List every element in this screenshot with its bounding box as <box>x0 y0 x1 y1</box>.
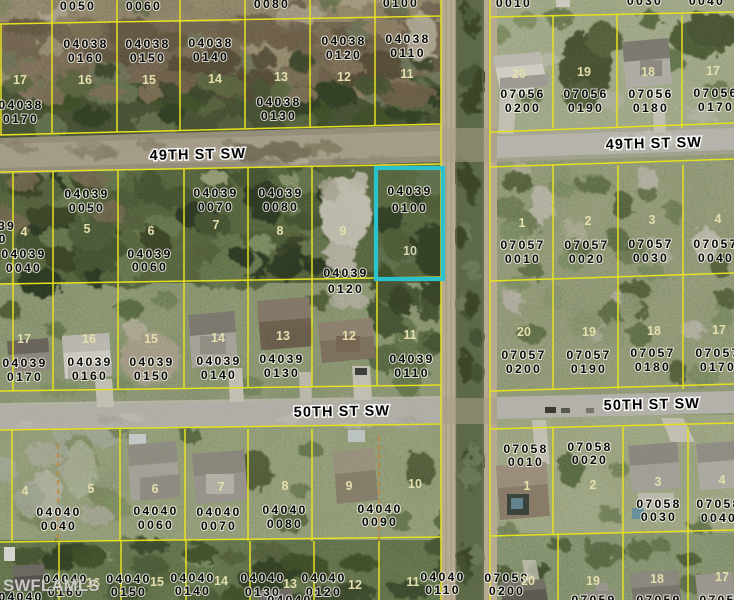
svg-text:0190: 0190 <box>568 101 604 115</box>
svg-text:4: 4 <box>21 225 28 239</box>
svg-text:0160: 0160 <box>68 51 104 65</box>
svg-text:04040: 04040 <box>106 572 151 586</box>
svg-text:0120: 0120 <box>326 48 362 62</box>
svg-text:0130: 0130 <box>264 366 300 380</box>
svg-text:0100: 0100 <box>392 201 428 215</box>
svg-text:13: 13 <box>274 70 288 84</box>
svg-text:07056: 07056 <box>693 86 734 100</box>
svg-text:07057: 07057 <box>500 238 545 252</box>
svg-text:0200: 0200 <box>506 362 542 376</box>
svg-text:04038: 04038 <box>0 98 44 112</box>
svg-text:4: 4 <box>715 212 722 226</box>
svg-text:07057: 07057 <box>693 237 734 251</box>
svg-text:07057: 07057 <box>564 238 609 252</box>
svg-text:17: 17 <box>712 323 726 337</box>
svg-text:0: 0 <box>0 232 8 246</box>
svg-text:0200: 0200 <box>489 584 525 598</box>
svg-text:1: 1 <box>519 216 526 230</box>
svg-text:0150: 0150 <box>111 585 147 599</box>
svg-text:0150: 0150 <box>134 369 170 383</box>
svg-text:4: 4 <box>719 473 726 487</box>
svg-text:3: 3 <box>655 475 662 489</box>
svg-text:1: 1 <box>524 479 531 493</box>
svg-text:0080: 0080 <box>254 0 290 11</box>
svg-text:0010: 0010 <box>508 455 544 469</box>
svg-text:04040: 04040 <box>357 502 402 516</box>
svg-text:04040: 04040 <box>36 505 81 519</box>
svg-text:13: 13 <box>283 577 297 591</box>
svg-text:04040: 04040 <box>420 570 465 584</box>
svg-text:0030: 0030 <box>641 510 677 524</box>
svg-text:0110: 0110 <box>394 366 429 380</box>
svg-text:16: 16 <box>78 73 92 87</box>
svg-text:11: 11 <box>406 575 419 589</box>
svg-text:07059: 07059 <box>571 593 616 600</box>
svg-text:0170: 0170 <box>3 112 39 126</box>
svg-text:0050: 0050 <box>69 201 105 215</box>
svg-text:07059: 07059 <box>699 593 734 600</box>
svg-text:3: 3 <box>649 213 656 227</box>
svg-text:8: 8 <box>277 224 284 238</box>
svg-text:04039: 04039 <box>259 352 304 366</box>
svg-text:0130: 0130 <box>261 109 297 123</box>
svg-text:07056: 07056 <box>563 87 608 101</box>
svg-text:0040: 0040 <box>41 519 77 533</box>
svg-text:04038: 04038 <box>63 37 108 51</box>
svg-text:0020: 0020 <box>572 453 608 467</box>
svg-text:0040: 0040 <box>689 0 725 8</box>
svg-text:0010: 0010 <box>496 0 532 10</box>
svg-text:07058: 07058 <box>696 497 734 511</box>
svg-text:0200: 0200 <box>505 101 541 115</box>
svg-text:9: 9 <box>340 224 347 238</box>
svg-text:07058: 07058 <box>636 497 681 511</box>
svg-text:7: 7 <box>213 218 220 232</box>
svg-text:0110: 0110 <box>425 583 460 597</box>
svg-text:04039: 04039 <box>129 355 174 369</box>
svg-text:0060: 0060 <box>138 518 174 532</box>
svg-text:12: 12 <box>342 329 356 343</box>
svg-text:0010: 0010 <box>505 252 541 266</box>
svg-text:07057: 07057 <box>628 237 673 251</box>
svg-text:0190: 0190 <box>571 362 607 376</box>
svg-text:7: 7 <box>218 480 225 494</box>
svg-text:12: 12 <box>337 70 351 84</box>
svg-text:11: 11 <box>403 328 416 342</box>
svg-text:19: 19 <box>577 65 591 79</box>
svg-text:16: 16 <box>82 332 96 346</box>
svg-text:04040: 04040 <box>267 593 312 600</box>
svg-text:07057: 07057 <box>695 346 734 360</box>
svg-text:0110: 0110 <box>390 46 425 60</box>
svg-text:04040: 04040 <box>196 505 241 519</box>
svg-text:0080: 0080 <box>267 517 303 531</box>
svg-text:04038: 04038 <box>385 32 430 46</box>
svg-text:13: 13 <box>276 329 290 343</box>
svg-text:20: 20 <box>512 67 526 81</box>
svg-text:07056: 07056 <box>500 87 545 101</box>
svg-text:19: 19 <box>586 574 600 588</box>
svg-text:10: 10 <box>408 477 422 491</box>
svg-text:15: 15 <box>144 332 158 346</box>
svg-text:04039: 04039 <box>258 186 303 200</box>
svg-text:07057: 07057 <box>501 348 546 362</box>
svg-text:04039: 04039 <box>67 355 112 369</box>
svg-text:0060: 0060 <box>132 260 168 274</box>
svg-text:04039: 04039 <box>64 187 109 201</box>
svg-text:04039: 04039 <box>323 266 368 280</box>
svg-text:0040: 0040 <box>701 511 734 525</box>
svg-text:0170: 0170 <box>698 100 734 114</box>
svg-text:0180: 0180 <box>635 360 671 374</box>
svg-text:50TH ST SW: 50TH ST SW <box>294 403 391 421</box>
svg-text:0170: 0170 <box>7 370 43 384</box>
svg-text:0170: 0170 <box>700 360 734 374</box>
svg-text:04039: 04039 <box>1 247 46 261</box>
svg-text:0030: 0030 <box>627 0 663 8</box>
svg-text:07059: 07059 <box>636 593 681 600</box>
svg-text:07056: 07056 <box>628 87 673 101</box>
svg-text:49TH ST SW: 49TH ST SW <box>605 135 702 154</box>
svg-text:04040: 04040 <box>301 571 346 585</box>
svg-text:04040: 04040 <box>262 503 307 517</box>
svg-text:0140: 0140 <box>193 50 229 64</box>
svg-text:6: 6 <box>148 224 155 238</box>
svg-text:15: 15 <box>150 575 164 589</box>
svg-text:14: 14 <box>208 72 222 86</box>
svg-text:5: 5 <box>88 482 95 496</box>
svg-text:04040: 04040 <box>133 504 178 518</box>
svg-text:9: 9 <box>346 479 353 493</box>
svg-text:17: 17 <box>17 332 31 346</box>
svg-text:07057: 07057 <box>566 348 611 362</box>
svg-text:0150: 0150 <box>130 51 166 65</box>
svg-text:04038: 04038 <box>125 37 170 51</box>
svg-text:0140: 0140 <box>175 584 211 598</box>
svg-text:12: 12 <box>348 578 362 592</box>
svg-text:18: 18 <box>641 65 655 79</box>
svg-text:04039: 04039 <box>127 247 172 261</box>
svg-text:0040: 0040 <box>698 251 734 265</box>
svg-text:4: 4 <box>22 484 29 498</box>
svg-text:39: 39 <box>0 219 16 233</box>
svg-text:0090: 0090 <box>362 515 398 529</box>
svg-text:04038: 04038 <box>321 34 366 48</box>
svg-text:14: 14 <box>211 331 225 345</box>
svg-text:0050: 0050 <box>60 0 96 13</box>
svg-text:11: 11 <box>400 67 413 81</box>
svg-text:0060: 0060 <box>126 0 162 13</box>
svg-text:5: 5 <box>84 222 91 236</box>
svg-text:04039: 04039 <box>387 184 432 198</box>
svg-text:18: 18 <box>650 572 664 586</box>
svg-text:0030: 0030 <box>633 251 669 265</box>
svg-text:0070: 0070 <box>201 519 237 533</box>
svg-text:8: 8 <box>282 479 289 493</box>
svg-text:17: 17 <box>706 64 720 78</box>
svg-text:17: 17 <box>715 570 729 584</box>
svg-text:14: 14 <box>214 574 228 588</box>
svg-text:07058: 07058 <box>503 442 548 456</box>
svg-text:0180: 0180 <box>633 101 669 115</box>
svg-text:0140: 0140 <box>201 368 237 382</box>
svg-text:6: 6 <box>152 482 159 496</box>
svg-text:07058: 07058 <box>567 440 612 454</box>
svg-text:17: 17 <box>13 73 27 87</box>
svg-text:04039: 04039 <box>389 352 434 366</box>
svg-text:04039: 04039 <box>2 356 47 370</box>
svg-text:0040: 0040 <box>6 261 42 275</box>
svg-text:04038: 04038 <box>188 36 233 50</box>
svg-text:15: 15 <box>142 73 156 87</box>
svg-text:0070: 0070 <box>198 200 234 214</box>
svg-text:SWFLAMLS: SWFLAMLS <box>3 576 100 595</box>
svg-text:2: 2 <box>585 214 592 228</box>
svg-text:04039: 04039 <box>193 186 238 200</box>
svg-text:49TH ST SW: 49TH ST SW <box>150 146 247 164</box>
svg-text:0120: 0120 <box>328 282 364 296</box>
svg-text:0080: 0080 <box>263 200 299 214</box>
svg-text:18: 18 <box>647 324 661 338</box>
svg-text:0160: 0160 <box>72 369 108 383</box>
svg-text:0020: 0020 <box>569 252 605 266</box>
svg-text:10: 10 <box>403 244 417 258</box>
svg-text:2: 2 <box>590 478 597 492</box>
svg-text:04040: 04040 <box>240 571 285 585</box>
svg-text:04040: 04040 <box>170 571 215 585</box>
svg-text:04038: 04038 <box>256 95 301 109</box>
svg-text:0100: 0100 <box>383 0 419 10</box>
svg-text:07057: 07057 <box>630 346 675 360</box>
svg-text:50TH ST SW: 50TH ST SW <box>604 396 701 414</box>
svg-text:19: 19 <box>582 325 596 339</box>
svg-text:20: 20 <box>517 325 531 339</box>
svg-text:20: 20 <box>521 574 535 588</box>
svg-text:04039: 04039 <box>196 354 241 368</box>
